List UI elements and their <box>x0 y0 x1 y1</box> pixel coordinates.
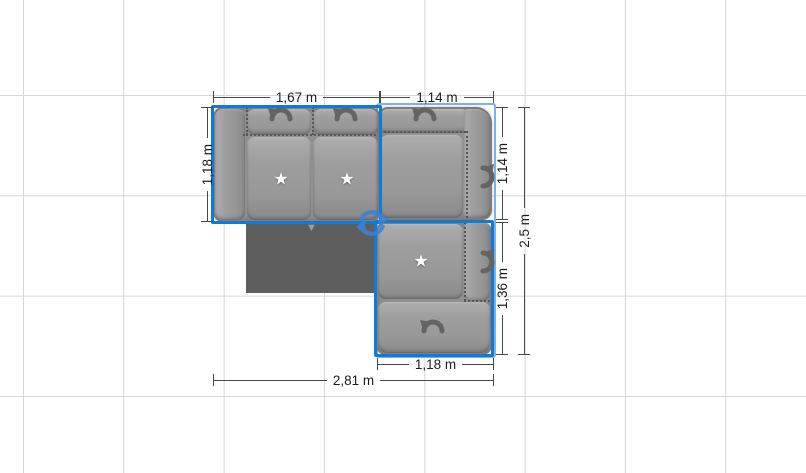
dimension-line <box>502 190 503 219</box>
dimension-line <box>207 108 208 138</box>
front-marker-icon: ▼ <box>306 223 317 234</box>
dimension-tick <box>518 354 530 355</box>
dimension-total-width: 2,81 m <box>213 372 494 388</box>
dimension-line <box>502 108 503 137</box>
dimension-top-left-width: 1,67 m <box>213 89 380 105</box>
dimension-label: 1,18 m <box>409 357 462 372</box>
dimension-line <box>214 97 270 98</box>
dimension-line <box>502 223 503 262</box>
dimension-right-upper-height: 1,14 m <box>494 107 510 220</box>
seat-star-icon: ★ <box>413 253 428 270</box>
handle-head <box>356 219 366 235</box>
dimension-label: 1,14 m <box>410 90 463 105</box>
dimension-top-right-width: 1,14 m <box>380 89 494 105</box>
dimension-tick <box>496 354 508 355</box>
dimension-line <box>524 108 525 208</box>
dimension-tick <box>493 358 494 370</box>
rotate-module-icon[interactable] <box>331 105 359 129</box>
dimension-line <box>323 97 379 98</box>
dimension-line <box>381 97 410 98</box>
dimension-label: 1,36 m <box>495 262 510 315</box>
dimension-line <box>207 191 208 221</box>
dimension-label: 1,14 m <box>495 137 510 190</box>
dimension-label: 2,5 m <box>517 208 532 254</box>
floor-plan-canvas[interactable]: ▼ ★ ★ ★ 1,67 m <box>0 0 806 473</box>
dimension-line <box>524 254 525 354</box>
sofa-seat-cushion <box>380 135 463 218</box>
dimension-bottom-width: 1,18 m <box>377 356 494 372</box>
dimension-left-height: 1,18 m <box>199 107 215 222</box>
rotate-module-icon[interactable] <box>410 105 438 129</box>
seat-star-icon: ★ <box>339 171 354 188</box>
dimension-tick <box>496 219 508 220</box>
dimension-line <box>464 97 493 98</box>
dimension-line <box>380 380 493 381</box>
group-rotate-handle-icon[interactable] <box>354 205 390 241</box>
rotate-module-icon[interactable] <box>418 317 446 341</box>
dimension-tick <box>201 221 213 222</box>
dimension-line <box>502 315 503 354</box>
dimension-line <box>214 380 327 381</box>
dimension-label: 1,18 m <box>200 138 215 191</box>
dimension-label: 2,81 m <box>327 373 380 388</box>
dimension-right-lower-height: 1,36 m <box>494 222 510 355</box>
handle-head <box>378 211 388 227</box>
seat-star-icon: ★ <box>273 171 288 188</box>
dimension-line <box>378 364 409 365</box>
rotate-module-icon[interactable] <box>266 105 294 129</box>
dimension-right-total-height: 2,5 m <box>516 107 532 355</box>
dimension-tick <box>493 91 494 103</box>
dimension-line <box>462 364 493 365</box>
dimension-tick <box>493 374 494 386</box>
seam-line <box>466 131 468 218</box>
dimension-label: 1,67 m <box>270 90 323 105</box>
seam-line <box>380 131 466 133</box>
